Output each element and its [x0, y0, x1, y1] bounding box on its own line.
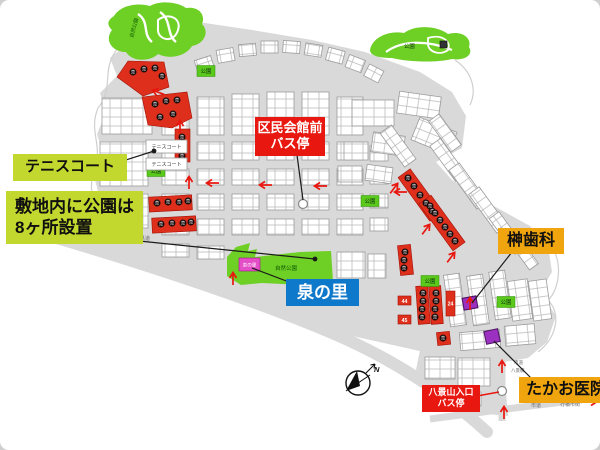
lot-block — [197, 219, 224, 235]
callout-takao-clinic: たかお医院 — [519, 377, 600, 403]
callout-parks-note: 敷地内に公園は 8ヶ所設置 — [6, 191, 143, 244]
bus-stop-circle-kumin — [299, 200, 308, 209]
leader-dot — [152, 149, 157, 154]
bus-stop-circle-hakkei — [498, 387, 507, 396]
lot-45-label: 45 — [402, 318, 408, 324]
lot-block — [162, 169, 189, 185]
callout-parks-note-line2: 8ヶ所設置 — [15, 217, 134, 238]
lot-block — [370, 218, 388, 231]
lot-24-label: 24 — [448, 302, 454, 308]
lot-block — [337, 219, 363, 235]
callout-kumin-hall-bus-stop: 区民会館前 バス停 — [255, 117, 325, 156]
lot-block — [261, 41, 278, 53]
callout-kumin-line2: バス停 — [255, 136, 325, 152]
callout-izumi-no-sato: 泉の里 — [286, 279, 359, 306]
lot-block — [302, 169, 329, 185]
park-building-marker — [440, 41, 447, 48]
tennis-chip-label: テニスコート — [151, 162, 181, 168]
callout-parks-note-line1: 敷地内に公園は — [15, 196, 134, 217]
lot-block — [232, 194, 259, 210]
compass-north-label: N — [374, 365, 380, 374]
lot-block — [338, 166, 362, 182]
lot-block — [352, 100, 394, 126]
lot-block — [232, 169, 259, 185]
nature-park-label: 自然公園 — [275, 264, 298, 272]
lot-block — [302, 219, 329, 235]
terrain-line-top-right — [455, 60, 473, 105]
lot-block — [267, 169, 294, 185]
city-road-label: 市道 — [531, 402, 541, 409]
callout-sakaki-dental: 榊歯科 — [498, 228, 564, 254]
lot-block — [197, 142, 224, 160]
park-chip — [497, 297, 515, 308]
lot-block — [267, 219, 294, 235]
callout-hakkei-line1: 八景山入口 — [422, 387, 480, 398]
lot-44-label: 44 — [402, 299, 408, 305]
lot-block — [197, 97, 224, 135]
lot-block — [197, 194, 224, 210]
takao-clinic-marker — [484, 329, 500, 345]
housing-map-page: 売 公園 — [0, 0, 600, 450]
lot-block — [337, 252, 365, 278]
lot-block — [458, 358, 490, 386]
lot-block — [368, 254, 386, 278]
lot-block — [283, 40, 301, 53]
lot-block — [232, 219, 259, 235]
compass: N — [346, 364, 380, 395]
lot-block — [425, 357, 455, 379]
callout-tennis-court: テニスコート — [13, 154, 127, 181]
park-shape-topright — [370, 27, 470, 61]
park-label: 公園 — [404, 43, 415, 50]
lot-block — [304, 43, 323, 58]
callout-kumin-line1: 区民会館前 — [255, 120, 325, 136]
izumi-no-sato-chip-label: 泉の里 — [243, 262, 257, 268]
lot-block — [239, 43, 257, 56]
lot-block — [365, 164, 393, 183]
leader-dot — [313, 257, 318, 262]
callout-hakkei-line2: バス停 — [422, 398, 480, 409]
tennis-chip-label: テニスコート — [151, 145, 181, 151]
lot-block — [337, 194, 363, 210]
lot-block — [267, 194, 294, 210]
callout-hakkeiyama-bus-stop: 八景山入口 バス停 — [422, 385, 480, 412]
park-chip — [421, 276, 439, 287]
lot-block — [344, 142, 368, 160]
park-chip — [197, 66, 215, 77]
park-chip — [361, 196, 379, 207]
lot-block — [216, 48, 235, 64]
lot-block — [504, 324, 536, 347]
